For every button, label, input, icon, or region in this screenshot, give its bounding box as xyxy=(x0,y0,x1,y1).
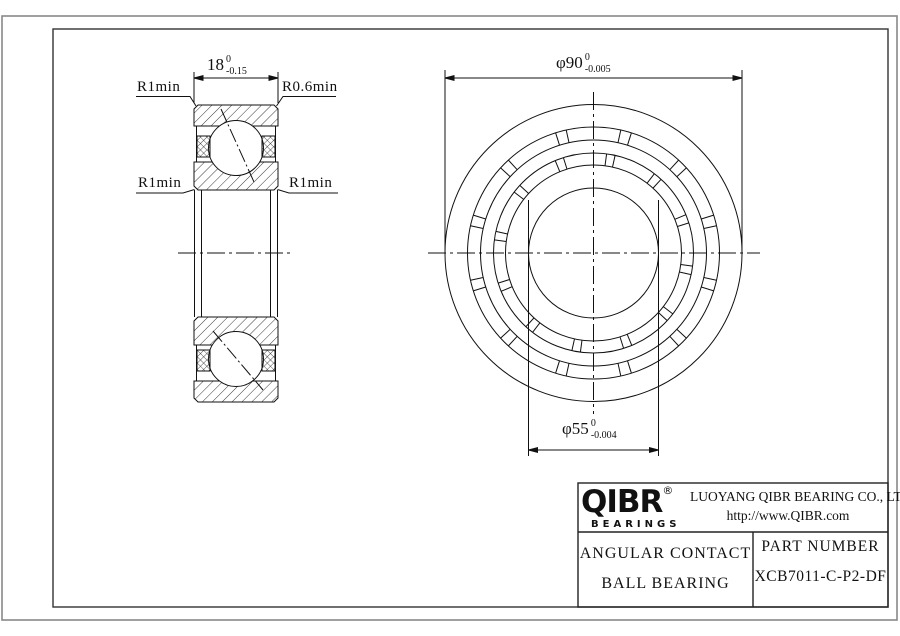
label-r1min-mid-right: R1min xyxy=(289,175,332,192)
cage-pocket-bridge xyxy=(473,287,485,291)
cage-pocket-bridge xyxy=(618,363,621,376)
registered-trademark-symbol: ® xyxy=(662,484,673,497)
ball-top xyxy=(209,121,264,176)
cage-pocket-bridge xyxy=(613,155,616,167)
label-r06min-top-right: R0.6min xyxy=(282,79,338,96)
cage-pocket-bridge xyxy=(473,215,485,219)
cage-pocket-bridge xyxy=(675,215,686,220)
cage-pocket-bridge xyxy=(501,329,511,338)
cage-pocket-bridge xyxy=(670,336,679,346)
width-value: 18 xyxy=(207,56,224,73)
product-type-line2: BALL BEARING xyxy=(578,575,753,593)
drawing-border-outer xyxy=(2,16,897,620)
cage-pocket-bridge xyxy=(647,174,654,184)
width-tolerance: 0 -0.15 xyxy=(226,54,247,77)
arrowhead xyxy=(529,448,538,453)
cage-pocket-bridge xyxy=(658,313,667,321)
arrowhead xyxy=(650,448,659,453)
cage-pocket-bridge xyxy=(627,334,632,345)
cage-pocket-bridge xyxy=(508,160,517,170)
label-r1min-mid-left: R1min xyxy=(138,175,181,192)
cage-pocket-bridge xyxy=(556,361,560,373)
leader-r06min-top-right xyxy=(277,97,337,107)
outer-diameter-dimension-text: φ90 0 -0.005 xyxy=(556,54,611,75)
outer-diameter-tolerance: 0 -0.005 xyxy=(585,52,611,75)
cage-section xyxy=(197,136,210,157)
cage-pocket-bridge xyxy=(670,160,679,170)
cage-pocket-bridge xyxy=(618,130,621,143)
cage-pocket-bridge xyxy=(494,240,506,242)
arrowhead xyxy=(445,76,454,81)
cage-pocket-bridge xyxy=(533,323,540,333)
cage-pocket-bridge xyxy=(704,278,717,281)
bore-diameter-dimension-text: φ55 0 -0.004 xyxy=(562,420,617,441)
arrowhead xyxy=(194,76,203,81)
cage-pocket-bridge xyxy=(677,168,687,177)
cage-pocket-bridge xyxy=(681,265,693,267)
part-number-value: XCB7011-C-P2-DF xyxy=(753,568,888,586)
cage-pocket-bridge xyxy=(704,226,717,229)
logo-sub-wordmark: BEARINGS xyxy=(591,519,680,530)
cage-pocket-bridge xyxy=(572,339,575,351)
arrowhead xyxy=(733,76,742,81)
company-logo: QIBR® xyxy=(581,485,673,518)
leader-r1min-top-left xyxy=(136,97,196,107)
bore-diameter-tolerance: 0 -0.004 xyxy=(591,418,617,441)
logo-wordmark: QIBR xyxy=(581,484,662,520)
arrowhead xyxy=(269,76,278,81)
outer-diameter-value: φ90 xyxy=(556,54,583,71)
cage-pocket-bridge xyxy=(620,337,624,349)
cage-pocket-bridge xyxy=(520,185,529,193)
cage-pocket-bridge xyxy=(563,158,567,170)
cage-pocket-bridge xyxy=(701,287,713,291)
cage-pocket-bridge xyxy=(508,336,517,346)
drawing-sheet: 18 0 -0.15 R1min R0.6min R1min R1min φ90… xyxy=(0,0,900,636)
bore-diameter-value: φ55 xyxy=(562,420,589,437)
cage-pocket-bridge xyxy=(555,161,560,172)
width-dimension-text: 18 0 -0.15 xyxy=(207,56,247,77)
cage-pocket-bridge xyxy=(628,133,632,145)
product-type-line1: ANGULAR CONTACT xyxy=(578,545,753,563)
cage-pocket-bridge xyxy=(580,340,582,352)
cage-pocket-bridge xyxy=(526,318,534,327)
cage-pocket-bridge xyxy=(498,280,510,284)
company-website: http://www.QIBR.com xyxy=(690,508,886,524)
cage-pocket-bridge xyxy=(677,329,687,338)
cage-pocket-bridge xyxy=(701,215,713,219)
cage-pocket-bridge xyxy=(628,361,632,373)
cage-pocket-bridge xyxy=(663,307,673,314)
cage-pocket-bridge xyxy=(677,223,689,227)
cage-pocket-bridge xyxy=(501,168,511,177)
front-view xyxy=(428,70,760,456)
cage-pocket-bridge xyxy=(566,363,569,376)
cage-pocket-bridge xyxy=(566,130,569,143)
cage-pocket-bridge xyxy=(556,133,560,145)
label-r1min-top-left: R1min xyxy=(137,79,180,96)
cage-pocket-bridge xyxy=(679,272,691,275)
cage-pocket-bridge xyxy=(501,287,512,292)
cage-section xyxy=(197,350,210,371)
cage-pocket-bridge xyxy=(471,226,484,229)
section-view xyxy=(136,72,338,402)
cage-pocket-bridge xyxy=(653,179,661,188)
cage-pocket-bridge xyxy=(471,278,484,281)
part-number-label: PART NUMBER xyxy=(753,538,888,556)
cage-pocket-bridge xyxy=(605,154,607,166)
ball-bottom xyxy=(209,332,264,387)
cage-pocket-bridge xyxy=(514,192,524,199)
cage-section xyxy=(262,136,275,157)
cage-pocket-bridge xyxy=(496,231,508,234)
company-name: LUOYANG QIBR BEARING CO., LTD xyxy=(690,489,886,505)
cage-section xyxy=(262,350,275,371)
